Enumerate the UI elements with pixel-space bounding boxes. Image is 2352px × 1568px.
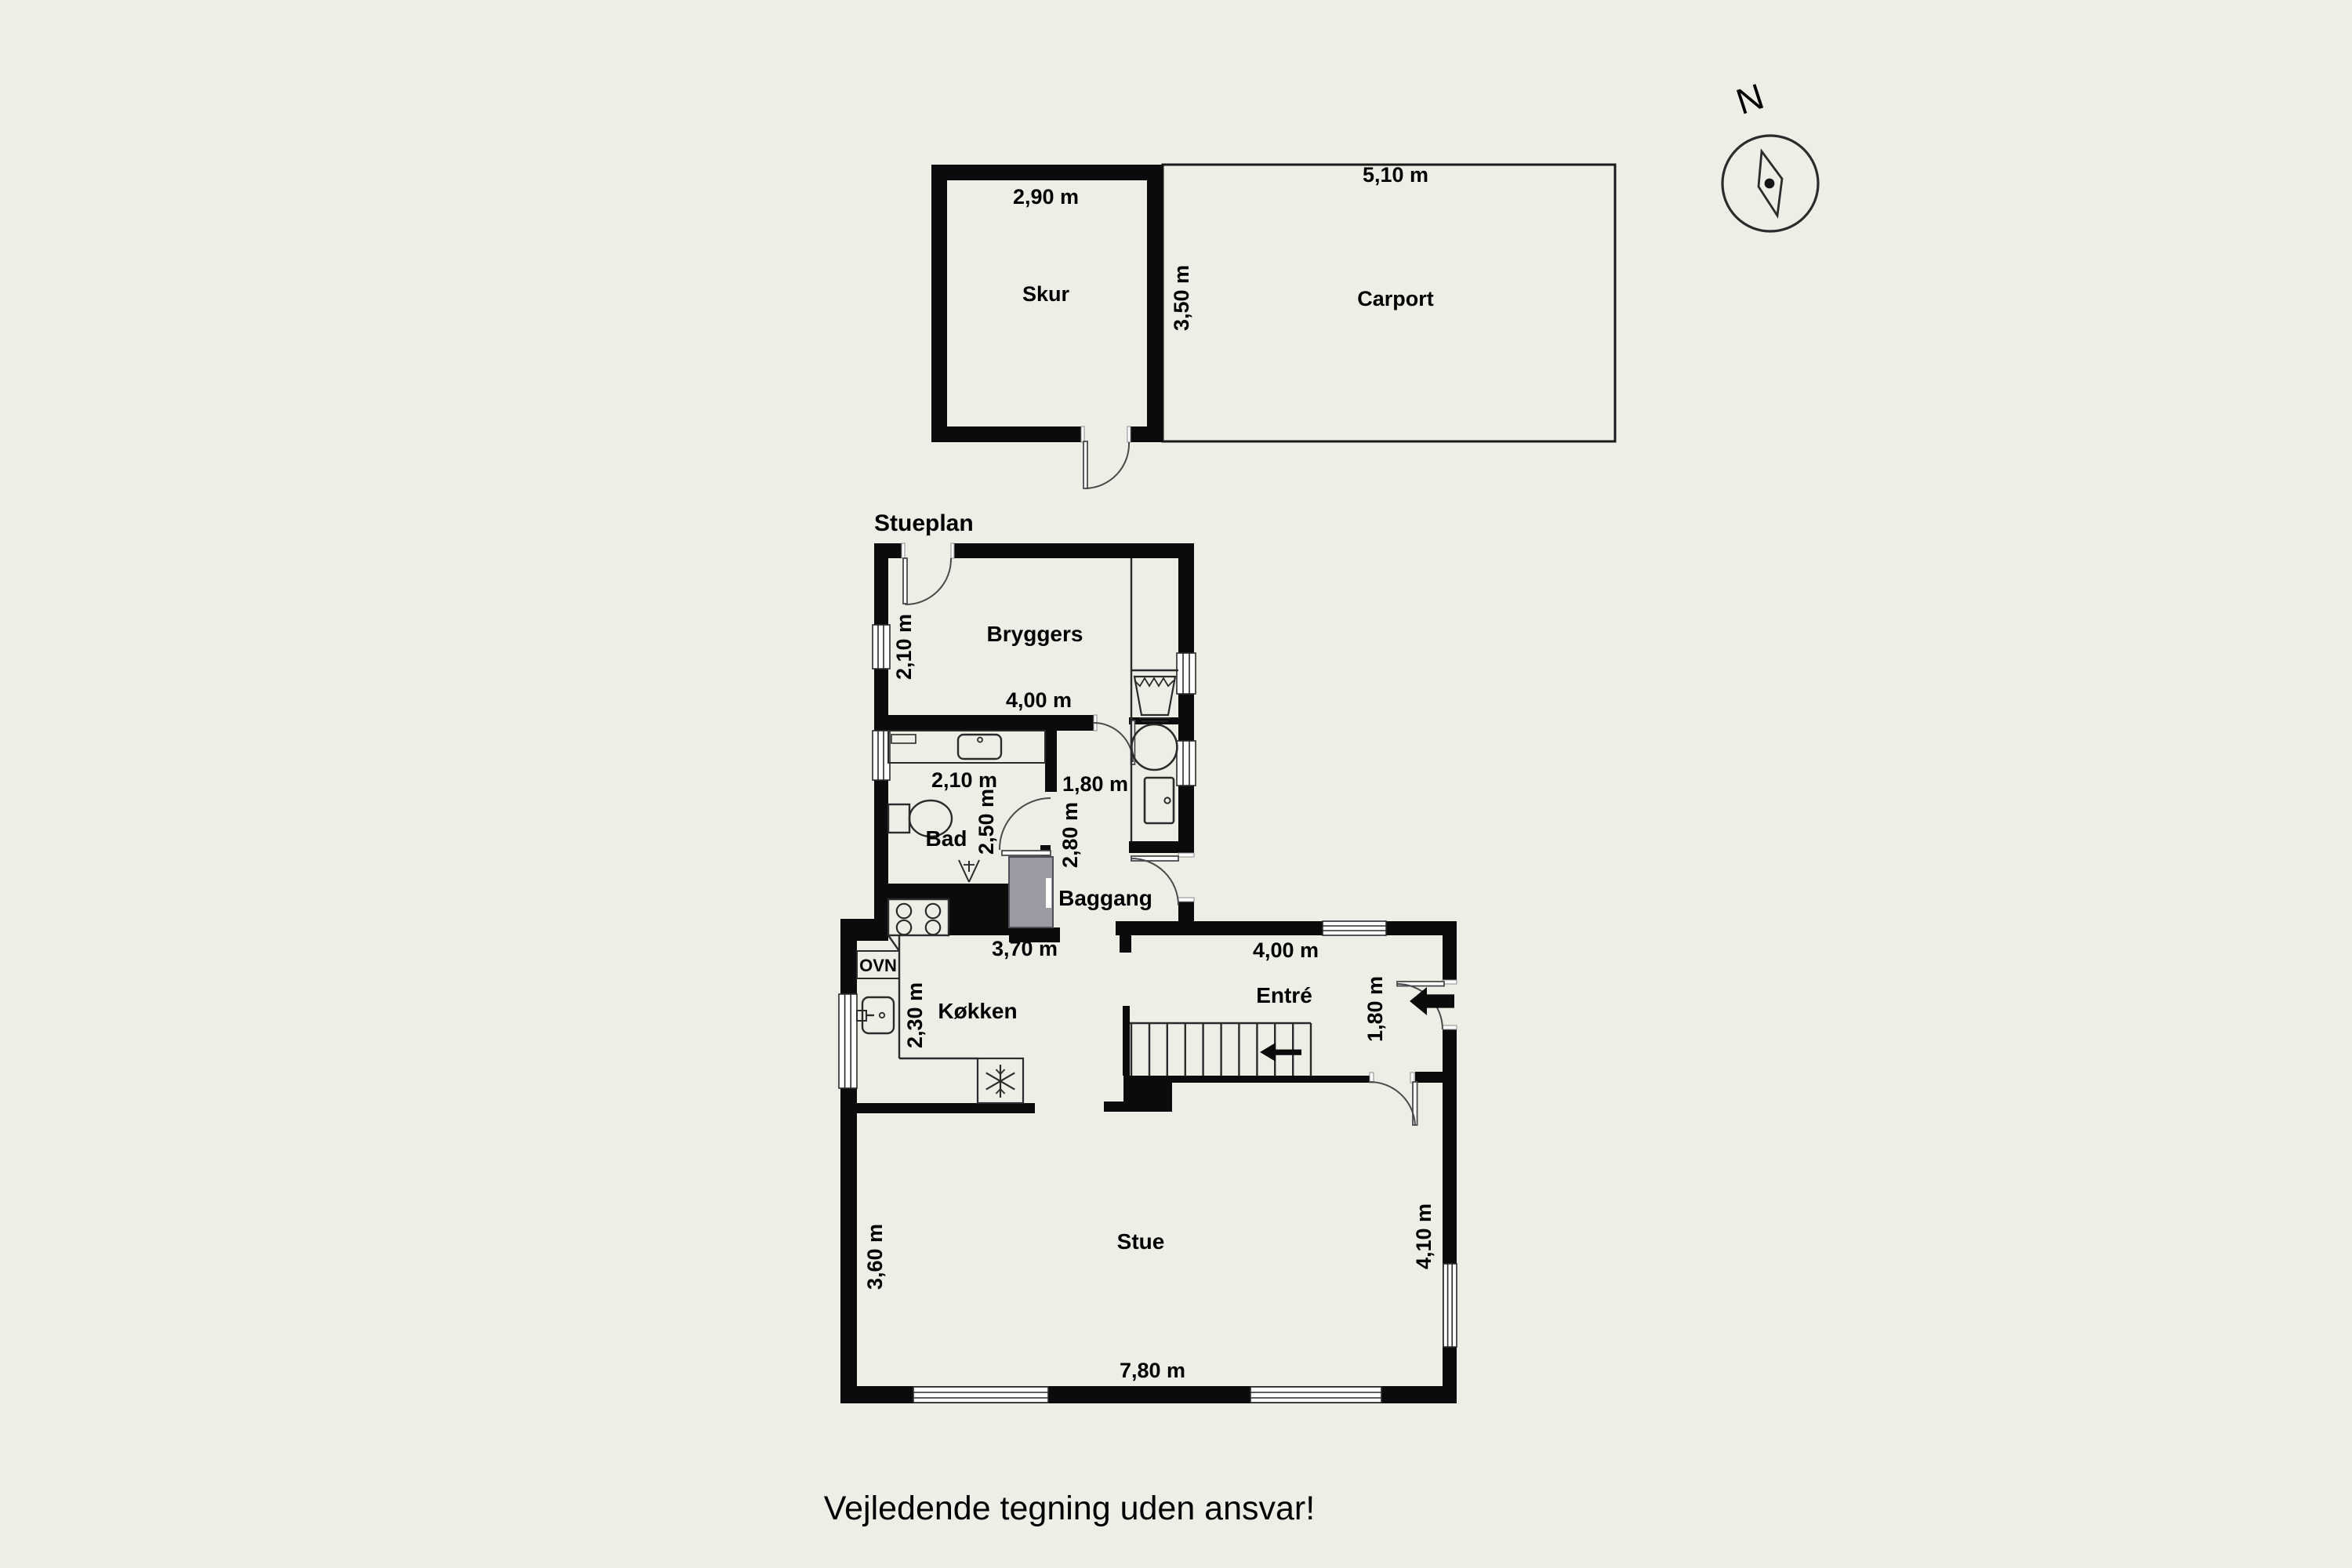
carport-width-dim: 5,10 m xyxy=(1363,163,1428,187)
oven-label: OVN xyxy=(859,956,897,975)
washing-machine-icon xyxy=(1131,724,1177,770)
window xyxy=(873,625,890,669)
chimney-flue-slot xyxy=(1046,878,1051,908)
baggang-passage-dim: 1,80 m xyxy=(1062,772,1128,796)
wall-kokken-south xyxy=(855,1103,1035,1113)
window xyxy=(913,1387,1048,1403)
entre-entry-dim: 1,80 m xyxy=(1363,976,1387,1042)
entrance-door xyxy=(1397,980,1457,1029)
stue-door xyxy=(1370,1073,1417,1125)
window xyxy=(1177,741,1196,786)
carport-depth-dim: 3,50 m xyxy=(1170,265,1193,331)
window xyxy=(839,994,857,1088)
wall-stair-south xyxy=(1172,1076,1370,1083)
bryggers-width-dim: 4,00 m xyxy=(1006,688,1072,712)
wall-upper-east xyxy=(1178,543,1194,853)
dryer-icon xyxy=(1145,778,1174,823)
compass-center-dot xyxy=(1765,179,1775,189)
skur-door-leaf xyxy=(1083,441,1087,488)
carport-label: Carport xyxy=(1357,287,1434,310)
skur-building xyxy=(931,165,1163,488)
house-walls xyxy=(840,543,1457,1403)
window xyxy=(1443,1264,1457,1347)
wall-stair-block xyxy=(1123,1076,1172,1112)
laundry-sink-icon xyxy=(1134,677,1175,721)
window xyxy=(1177,653,1196,694)
skur-door-arc xyxy=(1085,442,1129,488)
window xyxy=(1250,1387,1381,1403)
kokken-depth-dim: 2,30 m xyxy=(903,982,927,1048)
wall-stair-stub xyxy=(1104,1102,1123,1112)
kokken-width-dim: 3,70 m xyxy=(992,937,1058,960)
wall-bad-divider xyxy=(1045,721,1057,792)
baggang-label: Baggang xyxy=(1058,886,1152,910)
oven-cabinet: OVN xyxy=(857,935,899,978)
skur-label: Skur xyxy=(1022,282,1070,306)
utility-fixtures xyxy=(1131,558,1178,841)
door-jamb xyxy=(1127,426,1131,442)
bad-label: Bad xyxy=(926,826,967,851)
wall-lower-west xyxy=(840,919,857,1403)
shelf xyxy=(891,735,916,743)
bryggers-depth-dim: 2,10 m xyxy=(892,614,916,680)
wall-closet-band-lower xyxy=(1129,841,1178,853)
door-jamb xyxy=(1081,426,1084,442)
stue-width-dim: 7,80 m xyxy=(1120,1359,1185,1382)
bryggers-label: Bryggers xyxy=(987,622,1083,646)
baggang-depth-dim: 2,80 m xyxy=(1058,802,1082,868)
corridor-door xyxy=(1094,715,1134,764)
sink-icon xyxy=(958,735,1001,759)
chimney xyxy=(1009,857,1053,927)
kokken-label: Køkken xyxy=(938,999,1017,1023)
shower-drain-icon xyxy=(959,860,979,882)
freezer-icon xyxy=(978,1058,1023,1103)
wall-east-stub xyxy=(1178,902,1194,923)
entre-width-dim: 4,00 m xyxy=(1253,938,1319,962)
bryggers-door xyxy=(902,543,954,604)
plan-title: Stueplan xyxy=(874,510,974,536)
staircase xyxy=(1130,1023,1311,1076)
stove-icon xyxy=(888,899,949,935)
wall-entre-step xyxy=(1120,935,1131,953)
floorplan-drawing: N Stueplan xyxy=(0,0,2352,1568)
entre-label: Entré xyxy=(1256,983,1312,1007)
skur-width-dim: 2,90 m xyxy=(1013,185,1079,209)
window xyxy=(1323,921,1386,935)
compass: N xyxy=(1722,75,1818,231)
stue-label: Stue xyxy=(1117,1229,1165,1254)
stue-depth-right-dim: 4,10 m xyxy=(1412,1203,1436,1269)
floorplan-page: N Stueplan xyxy=(0,0,2352,1568)
disclaimer-text: Vejledende tegning uden ansvar! xyxy=(824,1490,1315,1527)
window xyxy=(873,731,890,780)
kitchen-sink-icon xyxy=(857,997,894,1033)
wall-entre-north-east xyxy=(1386,921,1457,935)
wall-stue-north-east xyxy=(1415,1072,1457,1083)
wall-entre-north xyxy=(1116,921,1323,935)
bad-depth-dim: 2,50 m xyxy=(975,789,998,855)
skur-door-opening xyxy=(1084,426,1127,442)
wall-bryggers-south xyxy=(874,715,1094,731)
wall-stair-west xyxy=(1123,1006,1130,1076)
stair-direction-arrow-icon xyxy=(1260,1043,1301,1062)
compass-north-label: N xyxy=(1731,75,1769,122)
stue-depth-left-dim: 3,60 m xyxy=(863,1224,887,1290)
wall-flue-block xyxy=(949,884,1009,935)
